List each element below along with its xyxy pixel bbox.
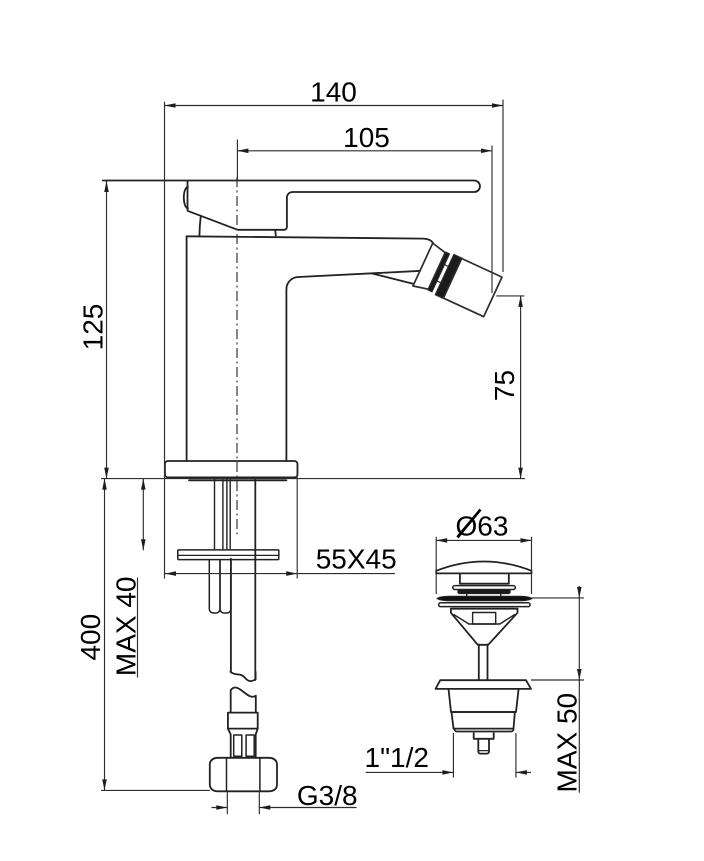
svg-text:105: 105 xyxy=(343,122,390,153)
svg-text:400: 400 xyxy=(75,614,106,661)
svg-text:55X45: 55X45 xyxy=(316,544,397,575)
svg-text:1"1/2: 1"1/2 xyxy=(365,742,429,773)
svg-text:MAX 40: MAX 40 xyxy=(111,576,142,676)
svg-text:Ø63: Ø63 xyxy=(456,511,509,542)
svg-text:MAX 50: MAX 50 xyxy=(552,693,583,793)
svg-text:75: 75 xyxy=(489,370,520,401)
svg-text:G3/8: G3/8 xyxy=(297,780,358,811)
svg-text:140: 140 xyxy=(310,76,357,107)
svg-text:125: 125 xyxy=(78,304,109,351)
